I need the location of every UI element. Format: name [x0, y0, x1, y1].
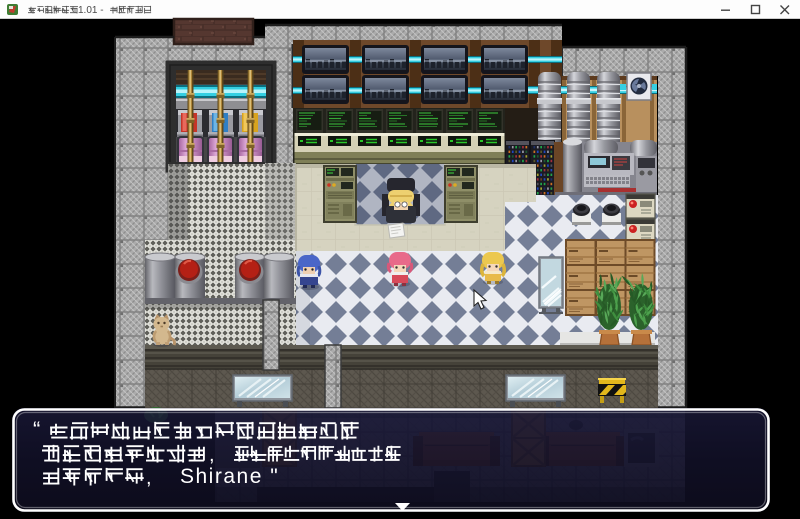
svg-text:Shirane ": Shirane " [180, 465, 279, 488]
svg-text:“: “ [33, 417, 40, 442]
svg-text:,: , [209, 444, 215, 466]
svg-text:,: , [146, 467, 152, 489]
svg-text:1.01 -: 1.01 - [78, 5, 104, 16]
